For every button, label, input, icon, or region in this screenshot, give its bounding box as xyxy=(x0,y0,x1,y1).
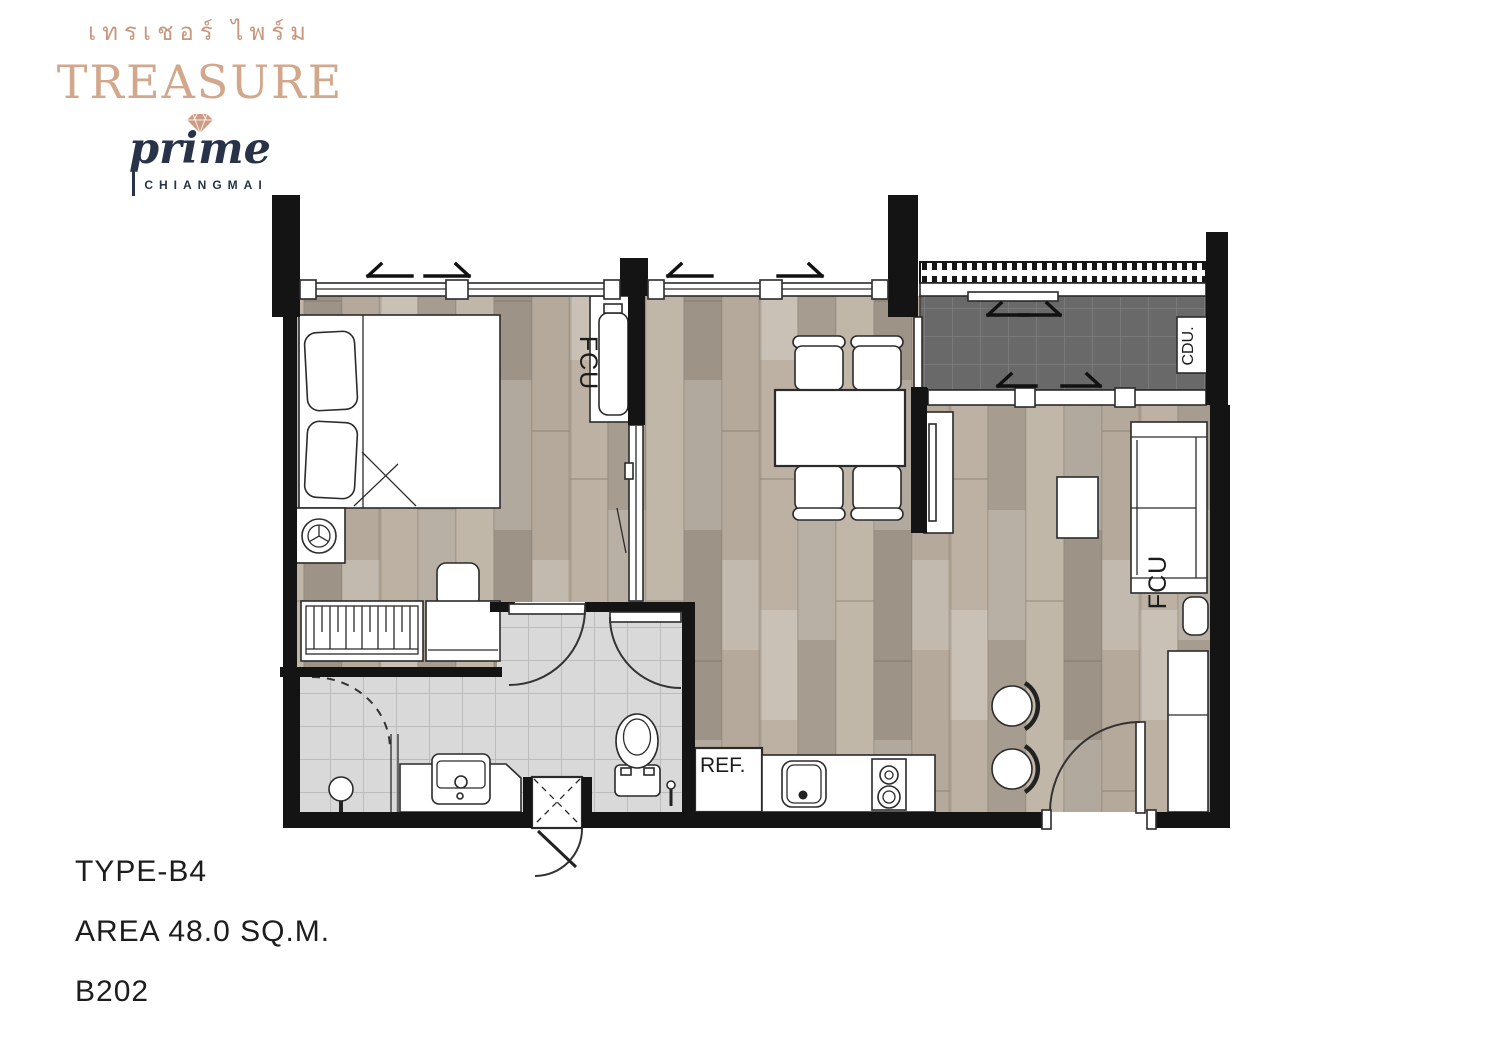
pillow xyxy=(304,331,358,412)
wall-left xyxy=(283,317,297,677)
toilet-bowl xyxy=(616,714,658,768)
balcony-floor xyxy=(920,295,1206,390)
unit-number: B202 xyxy=(75,975,330,1009)
bar-stool xyxy=(992,749,1032,789)
dining-chair-back xyxy=(793,508,845,520)
unit-area: AREA 48.0 SQ.M. xyxy=(75,915,330,949)
wall-right xyxy=(1210,405,1230,828)
louver-grille xyxy=(920,262,1206,283)
slider-mullion xyxy=(1115,388,1135,407)
balcony-rail xyxy=(968,292,1058,301)
wall-left-lower xyxy=(283,677,300,828)
fcu-unit-bedroom xyxy=(599,313,628,415)
wall-bathroom-top xyxy=(585,602,695,612)
side-table xyxy=(1183,597,1208,635)
wall-top-column xyxy=(888,195,918,317)
balcony-sidelight xyxy=(914,317,922,388)
shower-head xyxy=(329,777,353,801)
window-mullion xyxy=(760,280,782,299)
sliding-door-handle xyxy=(625,463,633,479)
dining-chair xyxy=(853,466,901,510)
wall-bottom xyxy=(283,812,532,828)
window-mullion xyxy=(604,280,620,299)
wall-shaft-stub xyxy=(582,777,592,820)
stove-burner-small xyxy=(880,766,898,784)
entrance-door-leaf xyxy=(1136,722,1145,813)
wall-bedroom-divider xyxy=(628,296,645,425)
wall-bedroom-bottom xyxy=(280,667,502,677)
dining-chair xyxy=(853,346,901,390)
window-mullion xyxy=(648,280,664,299)
wall-top-mid-pier xyxy=(620,258,648,296)
door-jamb xyxy=(1147,810,1156,829)
sink-drain xyxy=(455,776,467,788)
window-swing-mark xyxy=(778,264,822,276)
balcony-window-sill xyxy=(920,283,1206,296)
dining-chair-back xyxy=(851,508,903,520)
wall-top-left-column xyxy=(272,195,300,317)
window-mullion xyxy=(872,280,888,299)
wall-tv xyxy=(911,387,927,533)
entrance-cabinet xyxy=(1168,651,1208,812)
coffee-table xyxy=(1057,477,1098,538)
wall-bathroom-right xyxy=(682,602,695,812)
bar-stool xyxy=(992,686,1032,726)
toilet-brush xyxy=(667,781,675,789)
unit-info: TYPE-B4 AREA 48.0 SQ.M. B202 xyxy=(75,855,330,1035)
window-mullion xyxy=(300,280,316,299)
door-jamb xyxy=(1042,810,1051,829)
dining-chair xyxy=(795,346,843,390)
shaft-door-leaf xyxy=(538,831,576,867)
fcu-duct xyxy=(604,304,622,313)
wall-bottom xyxy=(695,812,1048,828)
brochure-page: เทรเชอร์ ไพร์ม TREASURE prime CHIANGMAI xyxy=(0,0,1500,1061)
pillow xyxy=(304,421,358,500)
bathroom-door-leaf xyxy=(509,604,585,614)
ref-label: REF. xyxy=(700,754,746,777)
sink-tap xyxy=(457,793,463,799)
window-swing-mark xyxy=(668,264,712,276)
toilet-button xyxy=(644,768,654,775)
kitchen-faucet xyxy=(799,791,808,800)
windows xyxy=(300,280,888,299)
window-mullion xyxy=(446,280,468,299)
cdu-label: CDU. xyxy=(1180,326,1197,365)
unit-type: TYPE-B4 xyxy=(75,855,330,889)
dining-chair xyxy=(795,466,843,510)
wall-right-balcony xyxy=(1206,232,1228,405)
fcu-label-bedroom: FCU xyxy=(574,336,602,390)
balcony-sliding-door xyxy=(928,390,1206,405)
window-swing-mark xyxy=(425,264,469,276)
fcu-label-living: FCU xyxy=(1144,555,1172,609)
wall-bottom xyxy=(582,812,695,828)
slider-mullion xyxy=(1015,388,1035,407)
dining-table xyxy=(775,390,905,466)
wall-stub xyxy=(911,388,928,405)
stove-burner-large xyxy=(878,786,900,808)
window-swing-mark xyxy=(368,264,412,276)
wall-shaft-stub xyxy=(523,777,532,820)
toilet-door-leaf xyxy=(610,612,681,622)
dresser xyxy=(426,601,500,661)
tv xyxy=(929,424,936,521)
toilet-button xyxy=(621,768,631,775)
